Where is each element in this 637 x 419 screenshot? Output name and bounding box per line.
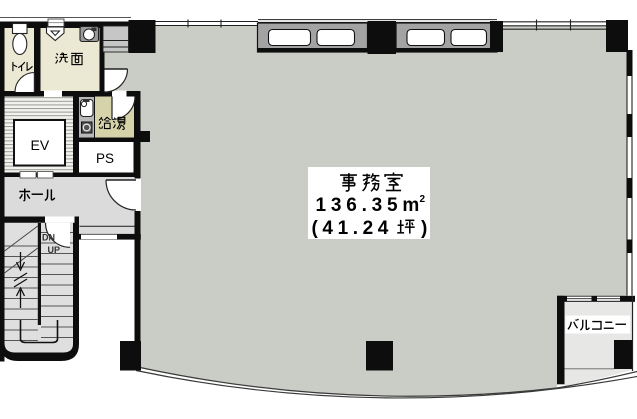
- svg-text:EV: EV: [31, 137, 50, 153]
- svg-text:DN: DN: [42, 233, 55, 243]
- svg-text:UP: UP: [48, 245, 61, 255]
- svg-text:PS: PS: [96, 151, 114, 166]
- svg-text:136.35m: 136.35m: [316, 195, 425, 216]
- svg-text:2: 2: [420, 194, 426, 205]
- svg-text:(41.24: (41.24: [312, 218, 393, 239]
- svg-text:): ): [421, 218, 427, 239]
